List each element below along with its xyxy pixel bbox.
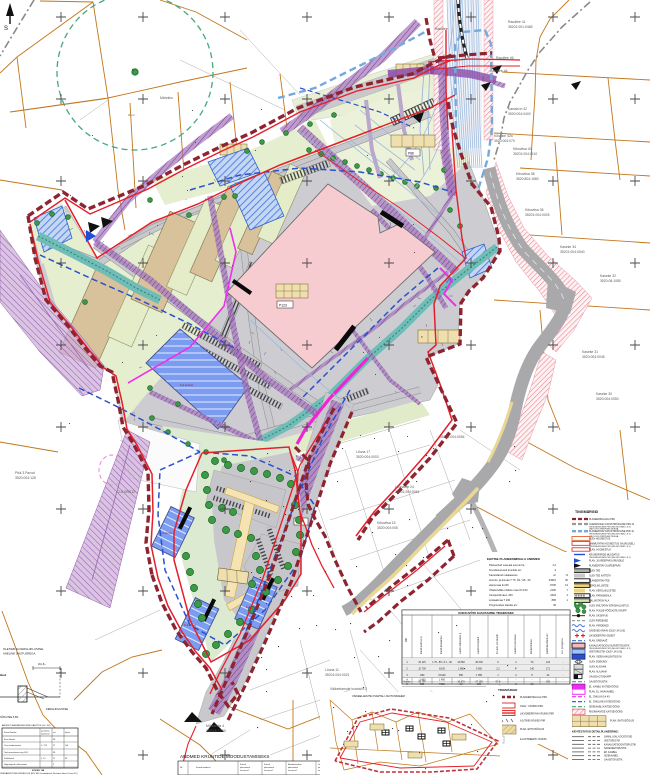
svg-text:PLAN. EHITUSÕIGUS: PLAN. EHITUSÕIGUS [520, 728, 544, 731]
svg-text:Raudtee 46: Raudtee 46 [496, 56, 514, 60]
svg-text:PLAN. JUURDEPÄÄS KRUNDILE: PLAN. JUURDEPÄÄS KRUNDILE [589, 560, 624, 563]
svg-text:OLEV SÄILITATAV KÕRGHALJASTUS: OLEV SÄILITATAV KÕRGHALJASTUS [589, 605, 629, 608]
svg-text:97,8: 97,8 [496, 681, 501, 684]
svg-text:LIKVIDEERITAV OBJEKT: LIKVIDEERITAV OBJEKT [589, 635, 616, 638]
svg-text:35201:004:0040: 35201:004:0040 [560, 250, 585, 254]
svg-text:OLEV PIIRDEAED: OLEV PIIRDEAED [589, 620, 608, 623]
svg-text:37 155: 37 155 [475, 681, 483, 684]
svg-text:Kokku: Kokku [404, 681, 411, 684]
svg-text:VÄIKEELAMUTE KVARTALI JAOTUSSK: VÄIKEELAMUTE KVARTALI JAOTUSSKEEM [352, 694, 405, 698]
svg-text:AJUTINE KRUNDI PIIR: AJUTINE KRUNDI PIIR [520, 720, 545, 723]
svg-text:KERGLIIKLUSTEE: KERGLIIKLUSTEE [589, 586, 609, 588]
svg-text:Kaseke 34: Kaseke 34 [560, 245, 576, 249]
svg-text:Ideed: Ideed [0, 674, 7, 677]
svg-text:PLAN. EHITUSÕIGUS: PLAN. EHITUSÕIGUS [610, 720, 634, 723]
svg-text:Kibuvitsa 36: Kibuvitsa 36 [525, 208, 544, 212]
svg-text:suurim korruselisus: suurim korruselisus [514, 633, 517, 654]
svg-text:KOKKU 124: KOKKU 124 [32, 769, 45, 772]
svg-text:Väikeelamute kvartal h.2: Väikeelamute kvartal h.2 [330, 687, 367, 691]
svg-text:Kõivuke 42a: Kõivuke 42a [494, 134, 513, 138]
svg-text:PLAN. EL. MAAKAABEL: PLAN. EL. MAAKAABEL [589, 691, 615, 694]
svg-text:krundi aadress ja: krundi aadress ja [420, 636, 423, 654]
svg-text:Raudtee 41: Raudtee 41 [508, 20, 526, 24]
svg-text:2404: 2404 [550, 593, 556, 597]
svg-text:Lõuna 17: Lõuna 17 [356, 450, 370, 454]
svg-text:sotsiaalmaa T 100: sotsiaalmaa T 100 [489, 598, 511, 602]
svg-text:3520:8:17:50: 3520:8:17:50 [206, 729, 226, 733]
svg-text:suurim ehitusalune p: suurim ehitusalune p [459, 632, 462, 654]
svg-text:KERGLIIKLUSTEE: KERGLIIKLUSTEE [46, 707, 68, 711]
svg-text:parkimise: parkimise [41, 731, 50, 733]
svg-text:4*: 4* [515, 668, 517, 671]
svg-text:PLAN. PIIRDEAED: PLAN. PIIRDEAED [589, 625, 609, 628]
svg-text:TINGMÄRGID: TINGMÄRGID [498, 688, 518, 692]
svg-text:35201:004:0061: 35201:004:0061 [395, 490, 420, 494]
svg-text:3520:004:0003: 3520:004:0003 [356, 455, 379, 459]
svg-text:3520:804:1580: 3520:804:1580 [516, 177, 539, 181]
svg-text:Kasu kõnele: Kasu kõnele [4, 738, 16, 741]
svg-text:OLEV TEE: OLEV TEE [589, 571, 601, 573]
svg-text:EHITISE PLANEERIMISALA ANDMED: EHITISE PLANEERIMISALA ANDMED [487, 557, 541, 561]
svg-text:parkimiskohtade arv: parkimiskohtade arv [546, 633, 549, 654]
svg-text:1 055: 1 055 [476, 674, 483, 677]
svg-text:3520:004:006: 3520:004:006 [377, 526, 398, 530]
svg-text:Krundi aadress: Krundi aadress [196, 766, 212, 769]
svg-text:SADEVEETORUSTIK: SADEVEETORUSTIK [604, 747, 627, 750]
svg-text:1 860: 1 860 [458, 668, 465, 671]
svg-text:JRK: JRK [406, 637, 408, 642]
svg-text:650: 650 [459, 674, 464, 677]
svg-text:PLANEERINGUALA PIIR: PLANEERINGUALA PIIR [589, 518, 615, 521]
svg-text:SAMAL AJAL KOOSTATUD: SAMAL AJAL KOOSTATUD [604, 736, 633, 739]
svg-text:ANDMED KRUNTIDE MOODUSTAMISEKS: ANDMED KRUNTIDE MOODUSTAMISEKS [180, 754, 270, 759]
svg-text:SIDEKAABEL: SIDEKAABEL [604, 755, 619, 758]
svg-text:Kaseke 31: Kaseke 31 [582, 350, 598, 354]
svg-text:35201:001:0465: 35201:001:0465 [508, 25, 533, 29]
svg-text:171: 171 [546, 668, 551, 671]
svg-text:-5700: -5700 [549, 583, 556, 587]
svg-text:ARVESTI KASINBUSKONDE KÄIVITUS: ARVESTI KASINBUSKONDE KÄIVITUS (1V...5K) [2, 724, 51, 727]
svg-text:PLAN. KERGLIIKLUSTEE: PLAN. KERGLIIKLUSTEE [589, 590, 616, 593]
svg-text:hoonete arv krundil: hoonete arv krundil [496, 634, 499, 654]
svg-text:326: 326 [546, 681, 551, 684]
svg-text:895: 895 [552, 598, 557, 602]
svg-text:5 900: 5 900 [476, 668, 483, 671]
svg-text:S: S [4, 26, 8, 32]
svg-text:Mõisaküla 4: Mõisaküla 4 [206, 724, 224, 728]
svg-text:Kibuvitsa 40: Kibuvitsa 40 [513, 147, 532, 151]
svg-text:Moodustatakse: Moodustatakse [288, 763, 302, 766]
svg-text:TEKKIVA KRUNDI PIIR (SELGITUSE: TEKKIVA KRUNDI PIIR (SELGITUSED LK 5) [589, 545, 631, 548]
svg-text:elamumaa E 100: elamumaa E 100 [489, 583, 509, 587]
svg-text:Raudtee 44: Raudtee 44 [490, 69, 508, 73]
svg-text:34915: 34915 [549, 578, 557, 582]
svg-text:4+1 korrust: 4+1 korrust [180, 383, 193, 387]
svg-text:3520:004:0400: 3520:004:0400 [508, 112, 531, 116]
svg-text:suurim brutopind: suurim brutopind [477, 636, 480, 654]
svg-text:GAASITORUSTIK: GAASITORUSTIK [589, 681, 608, 684]
svg-text:16 370: 16 370 [457, 681, 465, 684]
svg-text:VEETORUSTIK (OLEV JA UUS): VEETORUSTIK (OLEV JA UUS) [589, 651, 622, 654]
svg-text:PLAN. SIDEKANALISATSIOON: PLAN. SIDEKANALISATSIOON [589, 656, 622, 659]
svg-text:L 400: L 400 [439, 679, 446, 682]
svg-text:m²: m² [553, 574, 556, 577]
svg-text:OLEV TEE KATTETA: OLEV TEE KATTETA [589, 575, 611, 578]
svg-text:OLEV SIDEKAEV: OLEV SIDEKAEV [589, 661, 608, 664]
svg-text:Ühiskondlike ehitiste maa Üh 1: Ühiskondlike ehitiste maa Üh 100 [489, 588, 528, 592]
svg-text:VEETORUSTIK: VEETORUSTIK [604, 741, 621, 743]
svg-text:TEKKIVA KRUNDI PIIR (SELGITUSE: TEKKIVA KRUNDI PIIR (SELGITUSED LK 5) [589, 556, 631, 559]
svg-text:PLAN. ÜKSIKPUU: PLAN. ÜKSIKPUU [589, 615, 608, 618]
svg-text:suurus m²: suurus m² [240, 769, 249, 772]
svg-text:PLANEERITAV JUURDEPÄÄS: PLANEERITAV JUURDEPÄÄS [589, 565, 621, 568]
svg-text:TEKKIVA KRUNDI PIIR (SELGITUSE: TEKKIVA KRUNDI PIIR (SELGITUSED LK 5) [589, 647, 631, 650]
svg-text:Kavandatud maakasutus: Kavandatud maakasutus [489, 573, 518, 577]
svg-text:Lõuna 11: Lõuna 11 [325, 668, 339, 672]
svg-text:KEHTESTATUD DETAILPLANEERING:: KEHTESTATUD DETAILPLANEERING: [572, 730, 619, 734]
svg-text:suurus m²: suurus m² [264, 769, 273, 772]
svg-text:arv: arv [53, 732, 56, 734]
svg-text:P123: P123 [279, 304, 287, 308]
svg-text:35201:004:0025: 35201:004:0025 [525, 213, 550, 217]
svg-text:30 000: 30 000 [475, 661, 483, 664]
svg-text:3+1 korrust: 3+1 korrust [160, 532, 172, 535]
svg-text:EP. KAABEL: EP. KAABEL [604, 751, 618, 754]
svg-text:PLAN. DRENAAŽ: PLAN. DRENAAŽ [589, 640, 608, 643]
svg-text:Öö ja kodutamised: Öö ja kodutamised [4, 744, 21, 747]
svg-text:SÕIDUTEE 5,5M: SÕIDUTEE 5,5M [0, 716, 18, 719]
svg-text:PLAN. PUUDE-PÕÕSASTE GRUPP: PLAN. PUUDE-PÕÕSASTE GRUPP [589, 610, 627, 613]
svg-text:suurus m²: suurus m² [288, 769, 297, 772]
svg-text:140: 140 [530, 668, 535, 671]
svg-text:Krundi: Krundi [264, 764, 270, 766]
svg-text:3h 115: 3h 115 [418, 661, 426, 664]
svg-text:6/100: 6/100 [439, 668, 446, 671]
svg-text:Kanala tn 42: Kanala tn 42 [508, 107, 527, 111]
svg-text:PLAN. ALAJAAM: PLAN. ALAJAAM [589, 671, 607, 674]
svg-text:T100: T100 [439, 683, 445, 686]
svg-text:Kaseke 32: Kaseke 32 [600, 274, 616, 278]
svg-text:Teid arvestatavas aeg 10%: Teid arvestatavas aeg 10% [4, 751, 28, 754]
svg-text:Pikk 3 Parool: Pikk 3 Parool [15, 471, 35, 475]
svg-text:RIIGIMAANTEE KAITSEVÖÖND: RIIGIMAANTEE KAITSEVÖÖND [589, 711, 623, 714]
svg-text:planeeritud: planeeritud [288, 766, 298, 769]
svg-text:3520:004:0050: 3520:004:0050 [596, 397, 619, 401]
svg-text:GAASITORUSTIK: GAASITORUSTIK [604, 759, 623, 762]
svg-text:TINGMÄRGID: TINGMÄRGID [575, 510, 599, 514]
svg-text:-960: -960 [420, 674, 425, 677]
svg-text:Kibuvitsa 38: Kibuvitsa 38 [516, 172, 535, 176]
svg-text:3520:004:0045: 3520:004:0045 [582, 355, 605, 359]
svg-text:GAASIJAOTUSKAPP: GAASIJAOTUSKAPP [589, 676, 612, 679]
svg-text:tootmis- ja ärimaa T 75, Ä5 /: tootmis- ja ärimaa T 75, Ä5 / Ä5...30 [489, 578, 531, 582]
svg-text:Kaseke 30: Kaseke 30 [596, 392, 612, 396]
svg-text:35201:004:0054: 35201:004:0054 [440, 435, 465, 439]
svg-text:LIKVIDEERITAVA KRUNDI PIIR: LIKVIDEERITAVA KRUNDI PIIR [520, 713, 554, 716]
svg-text:EL. ÕHULIIN 0,4 KV: EL. ÕHULIIN 0,4 KV [589, 696, 610, 699]
svg-text:SADEVEE KRAAV (OLEV JA UUS): SADEVEE KRAAV (OLEV JA UUS) [589, 630, 625, 633]
svg-text:P88: P88 [408, 152, 414, 156]
svg-text:koefitsent: koefitsent [41, 732, 50, 735]
svg-text:PLAN. PARKIMISALA: PLAN. PARKIMISALA [589, 595, 612, 598]
svg-text:TC: TC [530, 661, 533, 664]
svg-text:OLEV ALAJAAM: OLEV ALAJAAM [589, 666, 606, 669]
svg-text:transpordimaa L 400: transpordimaa L 400 [489, 593, 513, 597]
svg-text:Jalgrattapele, tallusemotiv: Jalgrattapele, tallusemotiv [4, 763, 27, 766]
svg-text:EL. ÕHULIINI KAITSEVÖÖND: EL. ÕHULIINI KAITSEVÖÖND [589, 701, 621, 704]
svg-text:JNE KOOS PIIRIPUNKTIDEGA: JNE KOOS PIIRIPUNKTIDEGA [589, 528, 619, 531]
svg-text:Kokkulatud: Kokkulatud [4, 757, 14, 760]
svg-text:2160: 2160 [550, 588, 556, 592]
svg-text:123: 123 [546, 661, 551, 664]
svg-text:OLETIEB JA KERGLIIKLUSTEE: OLETIEB JA KERGLIIKLUSTEE [3, 647, 43, 651]
svg-text:EL. KAABLI KAITSEVÖÖND: EL. KAABLI KAITSEVÖÖND [589, 686, 619, 689]
svg-text:planeeritud: planeeritud [264, 766, 274, 769]
svg-text:Nr: Nr [180, 766, 183, 769]
svg-text:1,2: 1,2 [552, 563, 556, 567]
svg-text:Raudtee: Raudtee [435, 27, 448, 31]
svg-text:KOKKUVÕTE KASUTAMISE TINGIMUSE: KOKKUVÕTE KASUTAMISE TINGIMUSED [458, 610, 513, 615]
svg-text:1 75...85 / Ä 1...30: 1 75...85 / Ä 1...30 [432, 661, 452, 664]
svg-text:ees- ja tagaosa: ees- ja tagaosa [561, 638, 564, 654]
svg-text:SIDEKAABLI KAITSEVÖÖND: SIDEKAABLI KAITSEVÖÖND [589, 706, 620, 709]
svg-text:10 709: 10 709 [418, 668, 426, 671]
svg-text:Krundi: Krundi [240, 764, 246, 766]
svg-text:lubatud katuse: lubatud katuse [530, 638, 533, 654]
svg-text:3520:08:1080: 3520:08:1080 [600, 279, 621, 283]
svg-text:HALJASTATAV ALA: HALJASTATAV ALA [589, 600, 610, 603]
svg-text:Kibuvitsa 15: Kibuvitsa 15 [377, 521, 396, 525]
svg-text:planeeritud: planeeritud [240, 766, 250, 769]
svg-text:Lõunatee 24: Lõunatee 24 [395, 485, 414, 489]
svg-text:KANALISATSIOONITORUSTIK: KANALISATSIOONITORUSTIK [604, 743, 637, 746]
svg-text:ILLUSTREERIV JOONIS: ILLUSTREERIV JOONIS [520, 738, 547, 741]
svg-text:Kava lõmaks: Kava lõmaks [4, 731, 17, 734]
svg-text:Planeeritud maa-ala suurus ha: Planeeritud maa-ala suurus ha [489, 563, 525, 567]
svg-text:Üh100: Üh100 [438, 674, 446, 677]
svg-text:OLEV . KRUNDI PIIR: OLEV . KRUNDI PIIR [520, 705, 543, 708]
svg-text:AHELINE ÜHUTUSREGA.: AHELINE ÜHUTUSREGA. [3, 652, 36, 656]
svg-text:Prognoositav elanike arv: Prognoositav elanike arv [489, 603, 518, 607]
svg-text:13 860: 13 860 [457, 661, 465, 664]
svg-text:Krundisuurused kruntide arv: Krundisuurused kruntide arv [489, 568, 522, 572]
svg-text:1 / 112: 1 / 112 [41, 745, 48, 747]
svg-text:PLAN. HOONESTUS: PLAN. HOONESTUS [589, 549, 611, 552]
svg-text:3520:004:070: 3520:004:070 [494, 139, 515, 143]
svg-text:JNE KOOS PIIRIPUNKTIDEGA: JNE KOOS PIIRIPUNKTIDEGA [589, 535, 619, 538]
svg-text:PLANEERINGUALA PIIR: PLANEERINGUALA PIIR [520, 696, 547, 699]
svg-text:6Ü: 6Ü [530, 683, 533, 686]
svg-text:OLEV HOONESTUS: OLEV HOONESTUS [589, 538, 611, 540]
svg-text:3520:004:128: 3520:004:128 [15, 476, 36, 480]
svg-text:krundi kasutamise: krundi kasutamise [440, 635, 443, 654]
svg-text:52 797: 52 797 [418, 681, 426, 684]
svg-text:2KL,5+: 2KL,5+ [38, 663, 46, 666]
svg-text:Männiku: Männiku [160, 96, 173, 100]
svg-text:2-6 GRS12: 2-6 GRS12 [118, 490, 135, 494]
svg-text:Mänd: Mänd [128, 113, 135, 117]
svg-text:35201:004:0110: 35201:004:0110 [513, 152, 537, 156]
svg-text:35201:004:0021: 35201:004:0021 [325, 673, 350, 677]
svg-text:PLANEERITAV TEE: PLANEERITAV TEE [589, 580, 610, 583]
